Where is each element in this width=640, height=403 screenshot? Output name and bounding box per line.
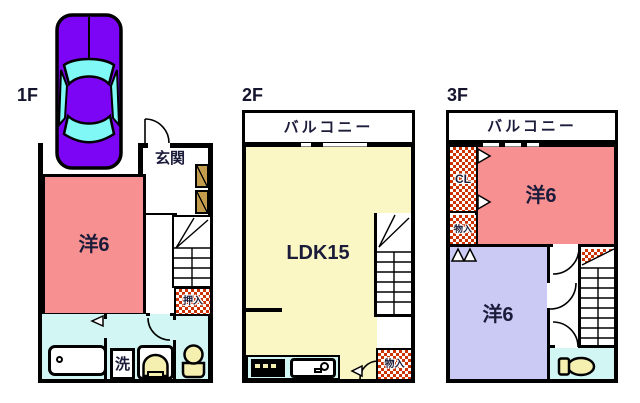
storage-3f: 物入 xyxy=(450,215,478,246)
room-3f-upper-label: 洋6 xyxy=(516,186,566,206)
wall xyxy=(146,313,150,316)
window xyxy=(323,143,367,147)
shoe-cabinet xyxy=(195,164,209,188)
balcony-2f: バルコニー xyxy=(242,110,415,145)
floor2-label: 2F xyxy=(242,85,263,106)
window xyxy=(483,143,499,147)
wall xyxy=(170,143,213,148)
storage-2f-label: 物入 xyxy=(385,360,405,370)
floor-plan-canvas: 1F 玄関 洋6 押入 洗 xyxy=(0,0,640,403)
floor1-label: 1F xyxy=(17,85,38,106)
closet-cl-label: CL xyxy=(455,173,471,185)
stair-landing-2f xyxy=(377,317,411,348)
stove-icon xyxy=(251,359,285,377)
wall xyxy=(374,213,377,316)
balcony-2f-label: バルコニー xyxy=(284,120,374,135)
staircase-1f xyxy=(172,215,212,288)
closet-oshiire-1f-label: 押入 xyxy=(183,297,203,307)
shoe-cabinet xyxy=(195,190,209,214)
storage-3f-label: 物入 xyxy=(454,225,472,234)
sink-pipe xyxy=(314,368,322,373)
stove-burner xyxy=(255,364,260,368)
washing-machine-icon xyxy=(137,345,174,380)
toilet-icon-3f xyxy=(556,355,596,378)
window xyxy=(301,143,311,147)
entrance-door-arc xyxy=(145,119,169,143)
floor3-label: 3F xyxy=(447,85,468,106)
laundry-label: 洗 xyxy=(115,357,130,372)
entrance-label: 玄関 xyxy=(144,151,196,166)
balcony-3f-label: バルコニー xyxy=(487,119,577,134)
sink-icon xyxy=(290,358,336,378)
balcony-3f: バルコニー xyxy=(446,110,618,143)
room-ldk-label: LDK15 xyxy=(268,243,368,263)
storage-2f: 物入 xyxy=(376,348,413,381)
car-icon xyxy=(55,13,123,170)
laundry-pan: 洗 xyxy=(110,348,135,380)
stove-burner xyxy=(271,364,276,368)
window xyxy=(527,143,539,147)
closet-oshiire-1f: 押入 xyxy=(174,287,212,316)
bathtub-drain xyxy=(56,356,63,363)
room-3f-lower-label: 洋6 xyxy=(470,305,526,325)
stove-burner xyxy=(263,364,268,368)
wall xyxy=(242,308,282,312)
closet-cl: CL xyxy=(450,147,478,213)
window xyxy=(505,143,521,147)
staircase-2f xyxy=(377,213,411,314)
room-1f-western-label: 洋6 xyxy=(78,235,109,255)
toilet-icon-1f xyxy=(180,343,207,380)
wall xyxy=(104,314,107,319)
wall xyxy=(578,244,614,247)
room-1f-western: 洋6 xyxy=(42,174,146,316)
wall xyxy=(578,247,581,348)
wall xyxy=(547,247,550,283)
